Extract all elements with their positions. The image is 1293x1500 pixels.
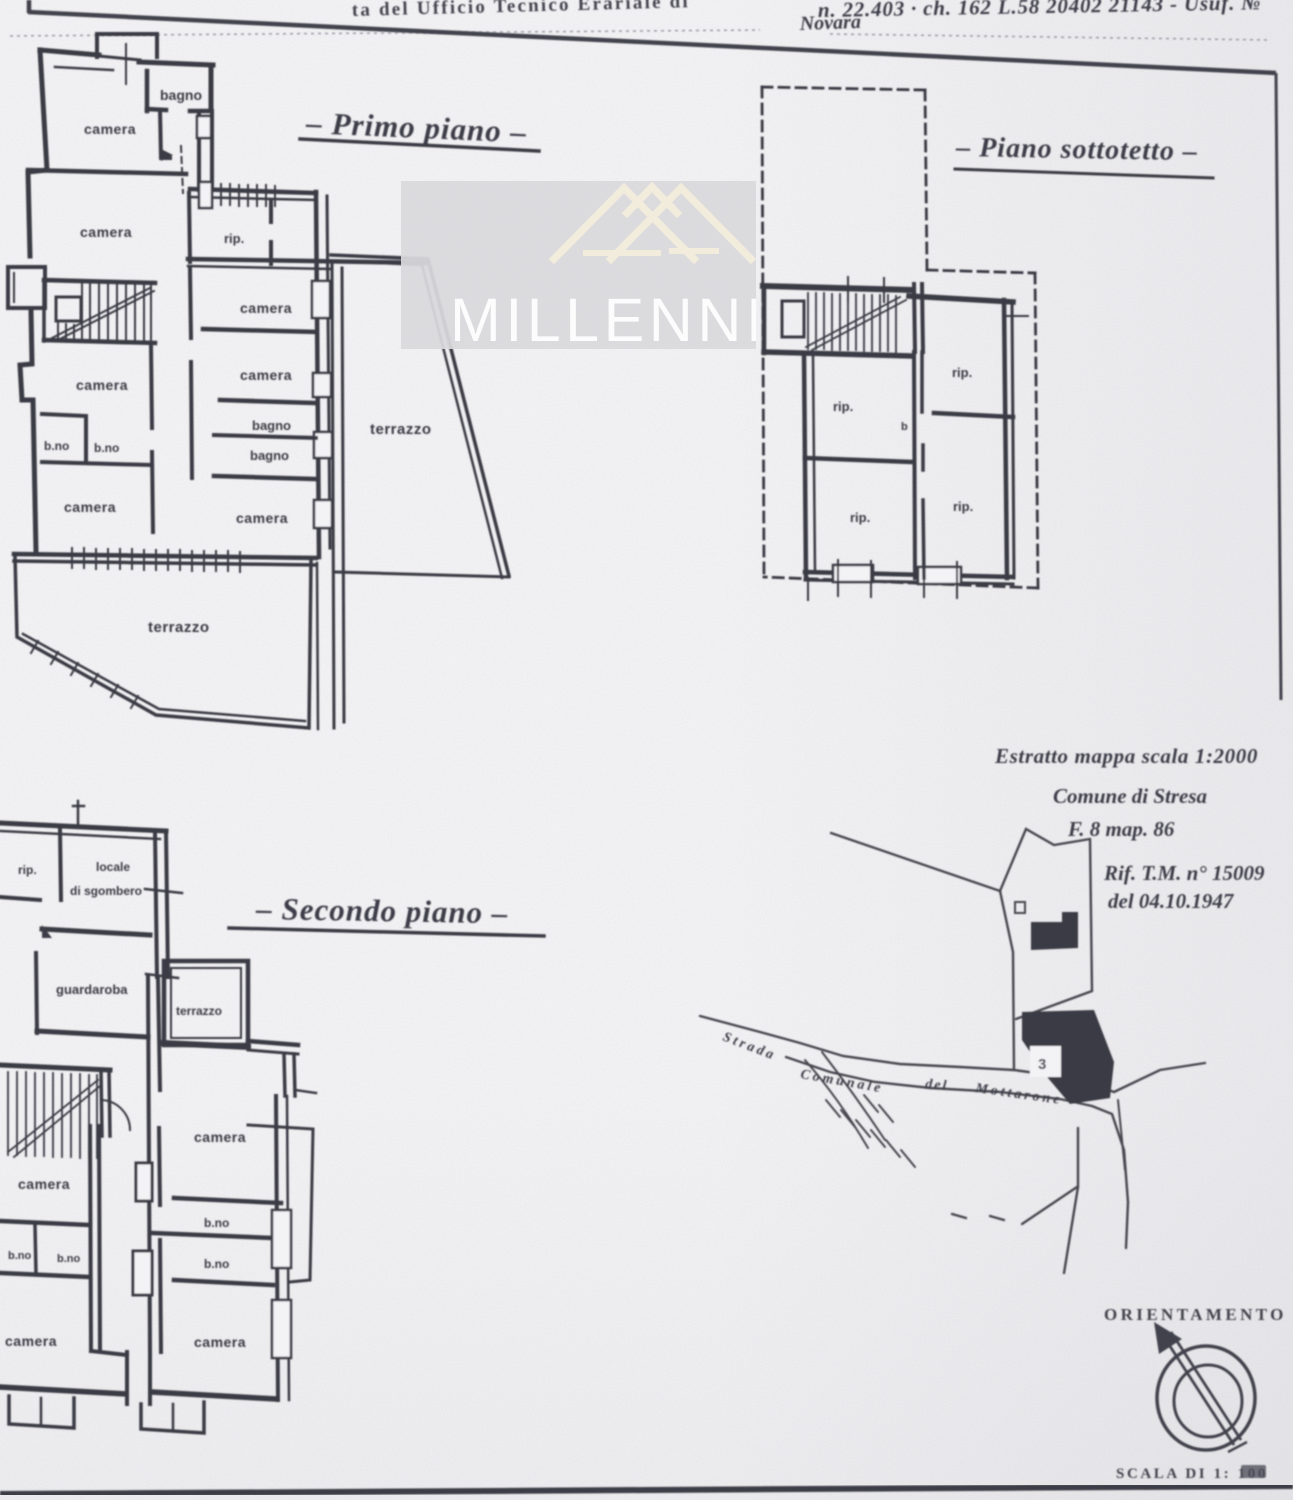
svg-text:camera: camera	[64, 499, 116, 515]
svg-text:di sgombero: di sgombero	[70, 884, 142, 898]
svg-text:bagno: bagno	[160, 87, 202, 103]
svg-text:camera: camera	[236, 510, 288, 526]
svg-text:del: del	[925, 1077, 949, 1094]
svg-text:Rif. T.M. n° 15009: Rif. T.M. n° 15009	[1103, 861, 1265, 885]
svg-text:rip.: rip.	[952, 365, 972, 380]
svg-text:camera: camera	[194, 1334, 246, 1350]
svg-text:rip.: rip.	[953, 499, 973, 514]
svg-text:rip.: rip.	[833, 399, 853, 414]
svg-text:camera: camera	[240, 367, 292, 383]
svg-text:b: b	[901, 421, 908, 433]
svg-text:terrazzo: terrazzo	[148, 619, 210, 636]
svg-text:locale: locale	[96, 860, 130, 874]
svg-text:F. 8 map. 86: F. 8 map. 86	[1067, 817, 1175, 841]
svg-text:camera: camera	[80, 224, 132, 240]
svg-text:rip.: rip.	[850, 510, 870, 525]
svg-text:3: 3	[1038, 1056, 1046, 1073]
svg-text:b.no: b.no	[44, 439, 69, 453]
svg-text:terrazzo: terrazzo	[176, 1004, 222, 1018]
svg-text:camera: camera	[18, 1176, 70, 1192]
svg-text:b.no: b.no	[94, 441, 119, 455]
svg-text:– Piano sottotetto –: – Piano sottotetto –	[955, 132, 1198, 167]
svg-text:camera: camera	[76, 377, 128, 393]
svg-text:b.no: b.no	[204, 1216, 229, 1230]
svg-text:– Secondo piano –: – Secondo piano –	[255, 891, 509, 930]
svg-text:ORIENTAMENTO: ORIENTAMENTO	[1104, 1305, 1287, 1324]
svg-text:b.no: b.no	[8, 1250, 31, 1262]
svg-text:b.no: b.no	[57, 1253, 80, 1265]
svg-text:rip.: rip.	[224, 231, 244, 246]
svg-text:camera: camera	[5, 1333, 57, 1349]
svg-text:Comune di Stresa: Comune di Stresa	[1053, 784, 1207, 808]
svg-text:bagno: bagno	[250, 448, 289, 463]
svg-text:terrazzo: terrazzo	[370, 421, 432, 438]
svg-text:rip.: rip.	[18, 863, 37, 877]
svg-text:camera: camera	[84, 121, 136, 137]
svg-text:guardaroba: guardaroba	[56, 982, 128, 997]
svg-text:del 04.10.1947: del 04.10.1947	[1108, 889, 1235, 913]
svg-text:b.no: b.no	[204, 1257, 229, 1271]
svg-text:Estratto mappa scala 1:2000: Estratto mappa scala 1:2000	[994, 744, 1258, 768]
svg-text:camera: camera	[240, 300, 292, 316]
svg-text:bagno: bagno	[252, 418, 291, 433]
svg-text:camera: camera	[194, 1129, 246, 1145]
